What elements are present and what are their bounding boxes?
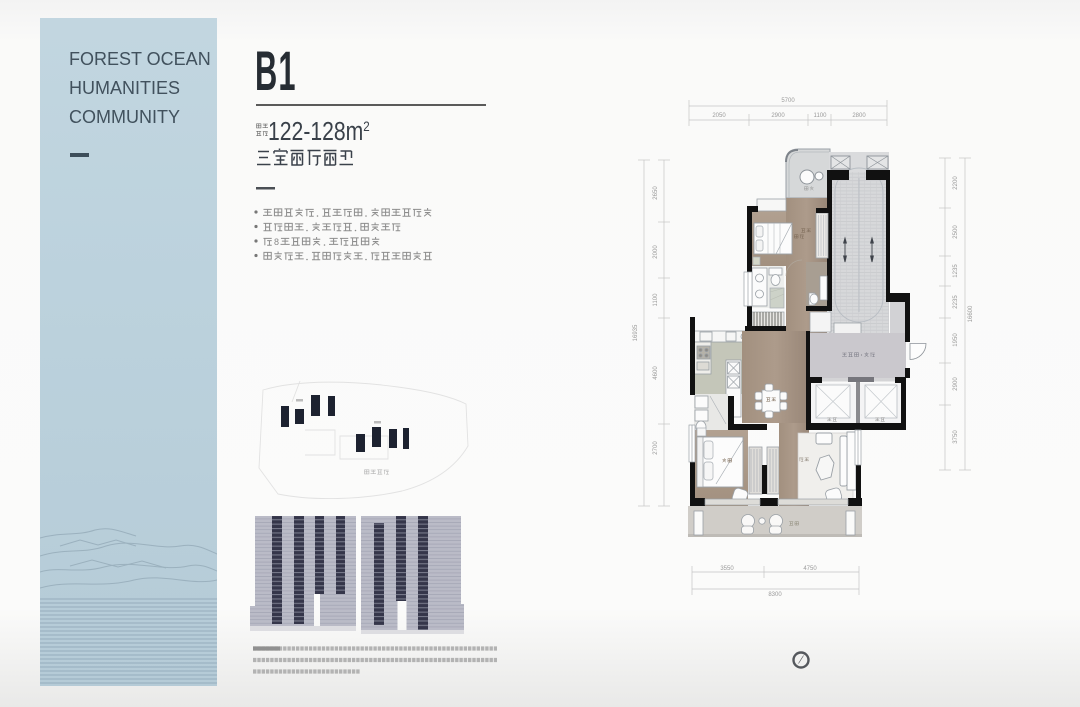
svg-text:1100: 1100 [814, 113, 828, 119]
svg-text:3750: 3750 [953, 430, 959, 444]
svg-text:2650: 2650 [653, 186, 659, 200]
svg-text:2700: 2700 [653, 441, 659, 455]
svg-text:8: 8 [274, 237, 279, 247]
svg-text:1950: 1950 [953, 333, 959, 347]
svg-text:8300: 8300 [768, 592, 782, 598]
svg-text:5700: 5700 [781, 98, 795, 104]
svg-text:2235: 2235 [953, 295, 959, 309]
svg-text:2500: 2500 [953, 225, 959, 239]
svg-text:2050: 2050 [712, 113, 726, 119]
svg-text:1235: 1235 [953, 264, 959, 278]
svg-text:16600: 16600 [968, 305, 974, 322]
svg-text:2200: 2200 [953, 176, 959, 190]
svg-text:2800: 2800 [852, 113, 866, 119]
svg-text:2900: 2900 [771, 113, 785, 119]
svg-text:16935: 16935 [633, 324, 639, 341]
svg-text:3550: 3550 [720, 566, 734, 572]
svg-text:1100: 1100 [653, 293, 659, 307]
svg-text:2900: 2900 [953, 377, 959, 391]
svg-text:4600: 4600 [653, 366, 659, 380]
svg-text:2000: 2000 [653, 245, 659, 259]
svg-text:4750: 4750 [803, 566, 817, 572]
